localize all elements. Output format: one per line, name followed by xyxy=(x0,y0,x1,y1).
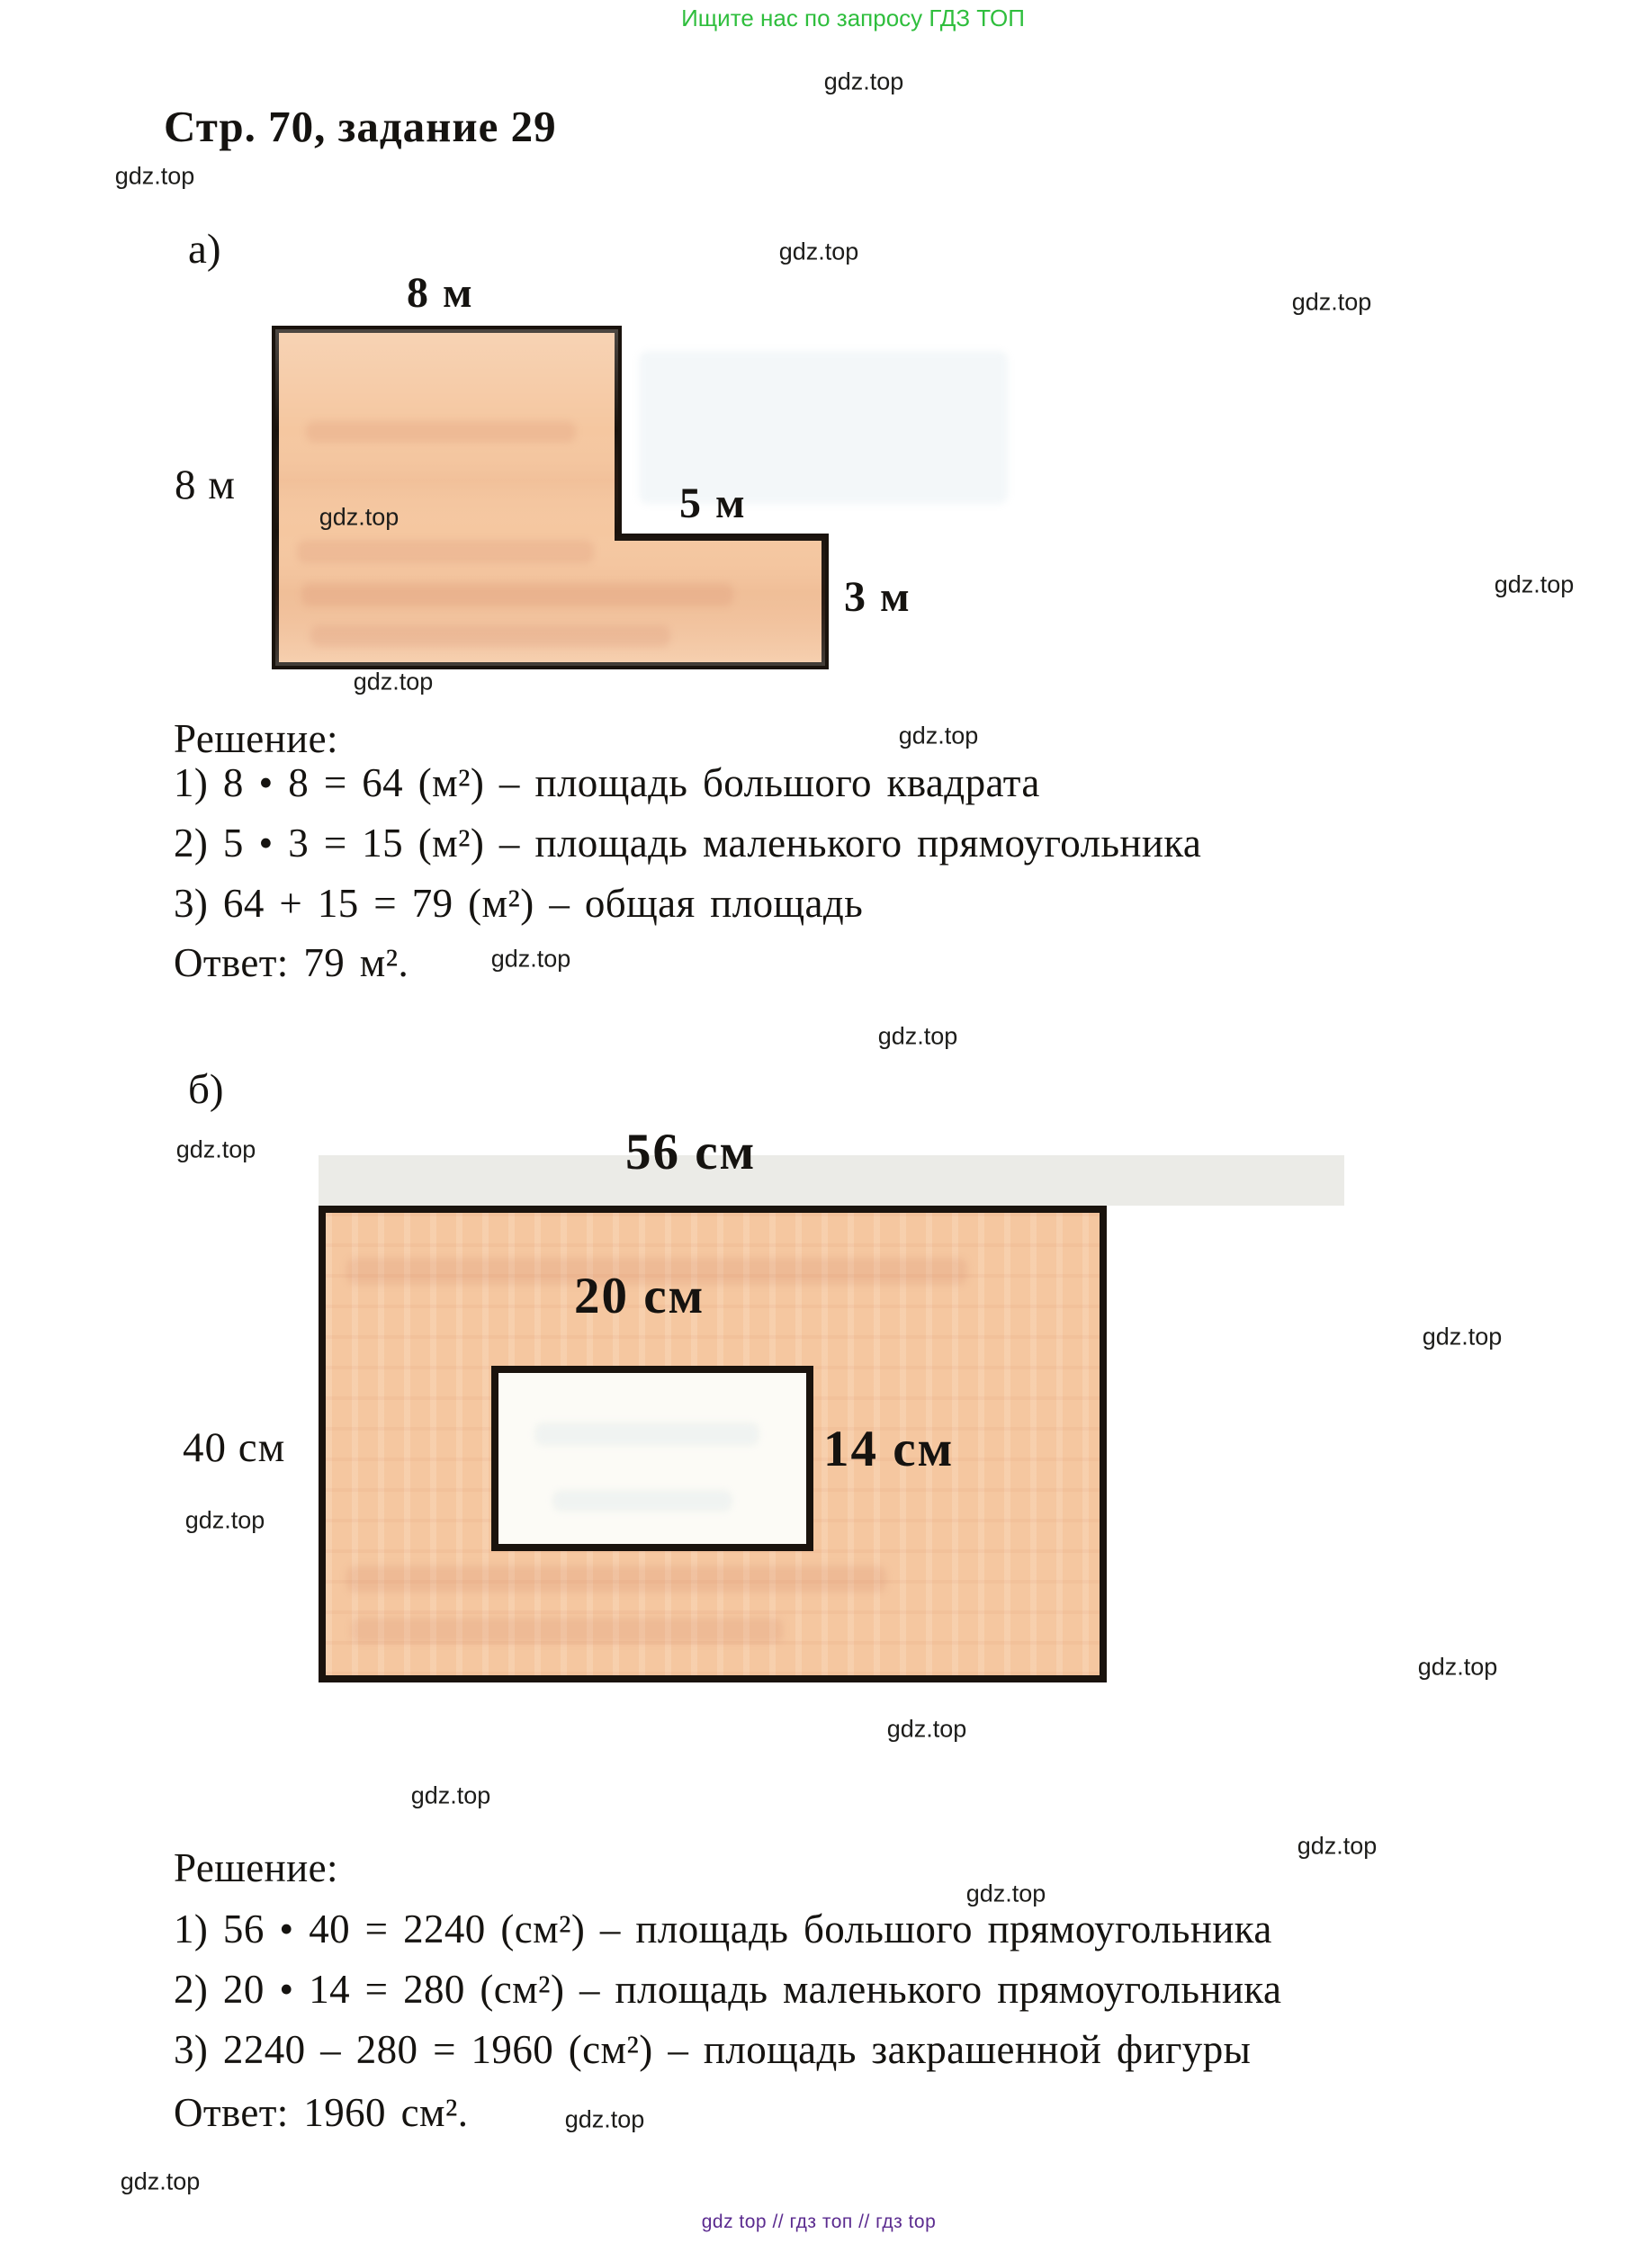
dim-label-inner-width: 20 см xyxy=(574,1267,705,1325)
solution-step: 3) 2240 – 280 = 1960 (см²) – площадь зак… xyxy=(174,2026,1251,2073)
watermark: gdz.top xyxy=(1423,1323,1503,1351)
footer-promo: gdz top // гдз топ // гдз top xyxy=(702,2212,937,2233)
dim-label-right: 3 м xyxy=(844,572,911,622)
watermark: gdz.top xyxy=(966,1880,1046,1908)
solution-answer: Ответ: 1960 см². xyxy=(174,2089,468,2136)
figure-b-inner-rect xyxy=(491,1366,813,1551)
promo-banner: Ищите нас по запросу ГДЗ ТОП xyxy=(681,4,1025,32)
watermark: gdz.top xyxy=(565,2106,645,2134)
section-b-label: б) xyxy=(188,1065,224,1114)
solution-step: 2) 5 • 3 = 15 (м²) – площадь маленького … xyxy=(174,820,1201,866)
solution-heading: Решение: xyxy=(174,715,338,762)
watermark: gdz.top xyxy=(121,2168,201,2196)
dim-label-step: 5 м xyxy=(679,479,747,528)
scan-band xyxy=(319,1155,1344,1206)
page-root: Ищите нас по запросу ГДЗ ТОП Стр. 70, за… xyxy=(0,0,1652,2252)
watermark: gdz.top xyxy=(1418,1654,1498,1682)
scan-showthrough xyxy=(552,1490,732,1512)
watermark: gdz.top xyxy=(878,1023,958,1051)
watermark: gdz.top xyxy=(779,238,859,266)
watermark: gdz.top xyxy=(176,1136,256,1164)
dim-label-width: 56 см xyxy=(625,1123,756,1181)
watermark: gdz.top xyxy=(1495,571,1575,599)
watermark: gdz.top xyxy=(354,668,434,696)
section-a-label: а) xyxy=(188,225,221,274)
watermark: gdz.top xyxy=(319,504,400,532)
watermark: gdz.top xyxy=(411,1782,491,1810)
dim-label-inner-height: 14 см xyxy=(823,1420,954,1478)
figure-a-lshape xyxy=(270,324,833,675)
solution-step: 1) 56 • 40 = 2240 (см²) – площадь большо… xyxy=(174,1906,1272,1952)
watermark: gdz.top xyxy=(899,722,979,750)
watermark: gdz.top xyxy=(185,1507,265,1535)
watermark: gdz.top xyxy=(1292,289,1372,317)
scan-showthrough xyxy=(534,1422,759,1446)
page-title: Стр. 70, задание 29 xyxy=(164,101,557,152)
watermark: gdz.top xyxy=(115,163,195,191)
solution-step: 1) 8 • 8 = 64 (м²) – площадь большого кв… xyxy=(174,759,1040,806)
dim-label-left: 8 м xyxy=(175,461,236,509)
solution-step: 2) 20 • 14 = 280 (см²) – площадь маленьк… xyxy=(174,1966,1281,2013)
watermark: gdz.top xyxy=(824,68,904,96)
solution-step: 3) 64 + 15 = 79 (м²) – общая площадь xyxy=(174,880,863,927)
solution-heading: Решение: xyxy=(174,1844,338,1891)
dim-label-height: 40 см xyxy=(183,1423,285,1472)
dim-label-top: 8 м xyxy=(407,268,474,318)
watermark: gdz.top xyxy=(1297,1833,1378,1861)
watermark: gdz.top xyxy=(491,946,571,973)
solution-answer: Ответ: 79 м². xyxy=(174,939,409,986)
watermark: gdz.top xyxy=(887,1716,967,1744)
